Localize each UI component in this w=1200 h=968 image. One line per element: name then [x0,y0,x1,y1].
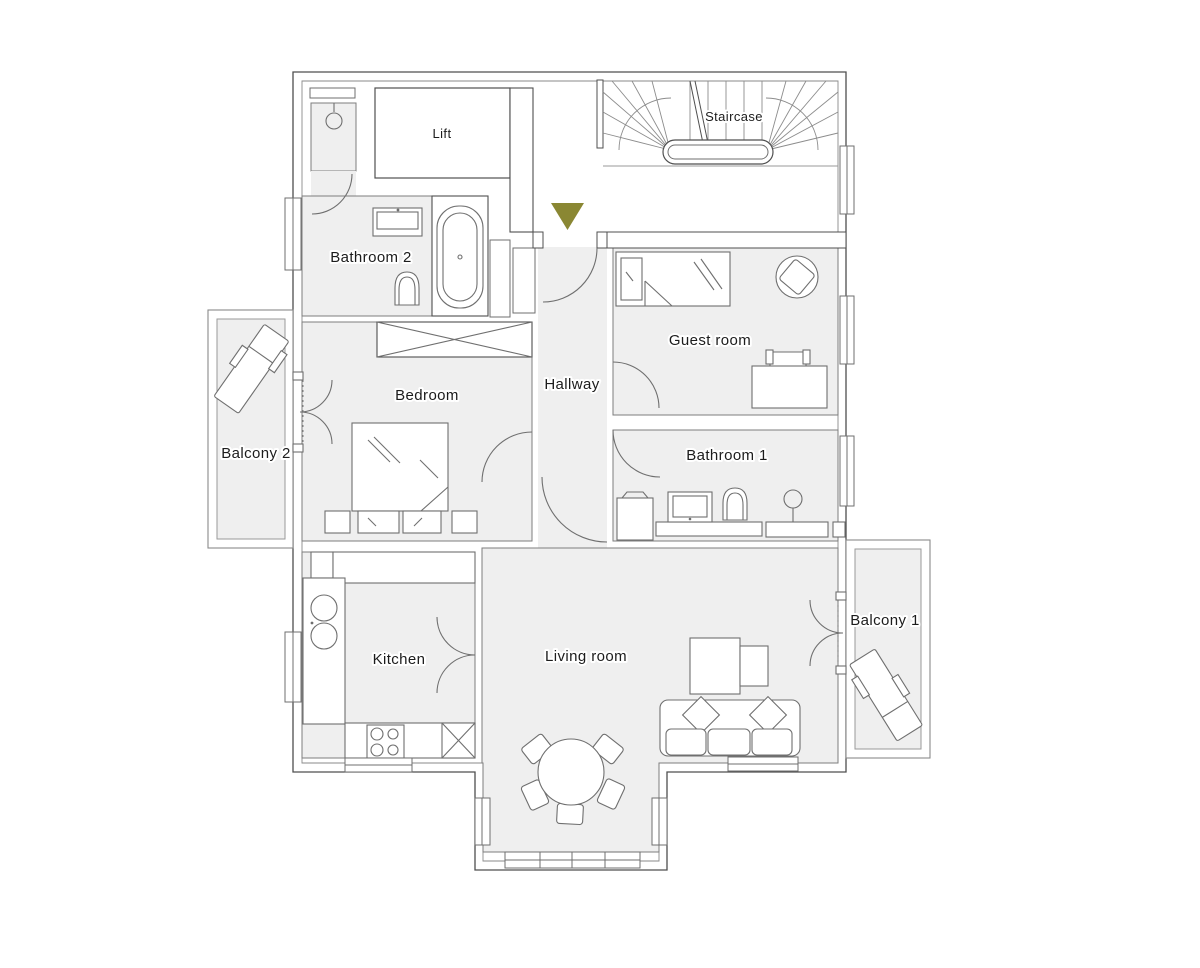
duct-closet-2 [513,248,535,313]
dining-chair [556,803,583,824]
kitchen-cabinet-top [311,552,333,578]
toilet-icon [395,272,419,305]
toilet-icon [723,488,747,520]
livingroom-label: Living room [545,648,627,665]
room-shower-vestibule [311,171,356,197]
sink-icon [373,208,422,236]
high-cabinet [310,88,355,98]
window-bay-left [475,798,490,845]
sink-icon [668,492,712,522]
guestroom-label: Guest room [669,332,751,349]
window-sofa-bottom [728,757,798,771]
duct-closet-1 [490,240,510,317]
entry-wall-stub-left [533,232,543,248]
stair-left-wall [597,80,603,148]
floor-plan-page: Balcony 2 Balcony 1 Lift [0,0,1200,968]
bathroom1-label: Bathroom 1 [686,447,768,464]
nightstand-icon [452,511,477,533]
balcony-2-label: Balcony 2 [221,445,290,462]
stove-icon [367,725,404,758]
balcony-1: Balcony 1 [844,540,930,758]
nightstand-icon [325,511,350,533]
bathroom2-label: Bathroom 2 [330,249,412,266]
window-bathroom1-right [840,436,854,506]
lift-label: Lift [433,126,452,141]
window-guest-right [840,296,854,364]
dishwasher-icon [442,723,475,758]
balcony-2: Balcony 2 [208,310,294,548]
dining-table [538,739,604,805]
window-kitchen-left [285,632,301,702]
wardrobe-icon [377,322,532,357]
window-stair-right [840,146,854,214]
single-bed-icon [616,252,730,306]
staircase-label: Staircase [705,109,763,124]
hallway-label: Hallway [544,376,599,393]
kitchen-label: Kitchen [373,651,426,668]
sofa-icon [660,697,800,756]
kitchen-counter-bottom [345,723,475,758]
window-bay-right [652,798,667,845]
landing-bottom-wall [607,232,846,248]
bedroom-label: Bedroom [395,387,459,404]
window-bay-bottom [505,852,640,868]
balcony-1-label: Balcony 1 [850,612,919,629]
window-bathroom2-left [285,198,301,270]
bathtub-icon [432,196,488,316]
shelf [833,522,845,537]
entry-wall-stub-right [597,232,607,248]
floor-plan-canvas: Balcony 2 Balcony 1 Lift [0,0,1200,968]
shower-tray [766,522,828,537]
kitchen-counter-left [303,578,345,724]
washing-machine-icon [617,492,653,540]
landing-divider-wall [510,88,533,232]
window-kitchen-bottom [345,758,412,772]
kitchen-counter-top [333,552,475,583]
coffee-table-icon [690,638,768,694]
armchair-icon [776,256,818,298]
bathroom-counter [656,522,762,536]
